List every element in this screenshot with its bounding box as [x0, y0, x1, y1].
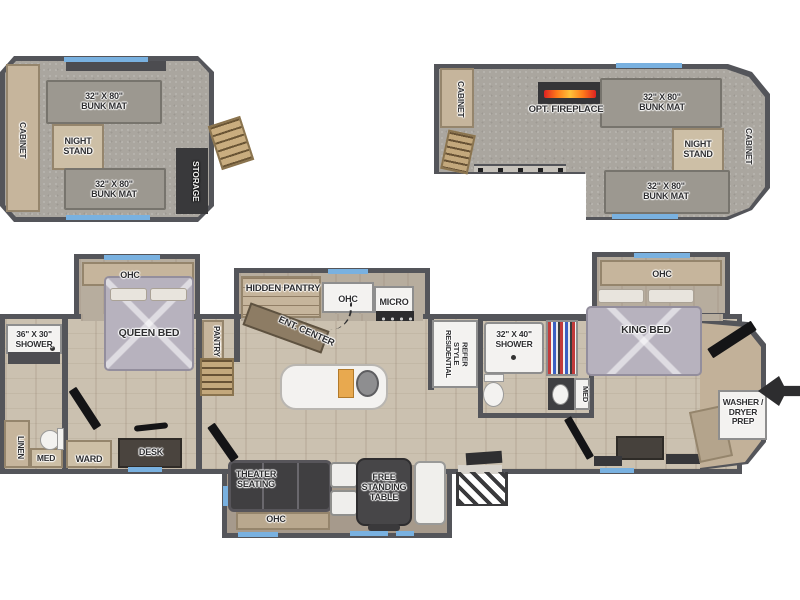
- king-bench: [616, 436, 664, 460]
- theater-ohc: [236, 512, 330, 530]
- king-bottom-window: [600, 468, 634, 473]
- refrigerator: [432, 320, 478, 388]
- king-slide-window: [634, 253, 690, 258]
- washer-dryer-prep: [718, 390, 767, 440]
- mid-toilet-tank: [484, 374, 504, 382]
- theater-window-3: [396, 531, 414, 536]
- island-cutting-board: [338, 369, 354, 398]
- rear-loft-window-top: [64, 57, 148, 62]
- front-loft-cabinet-left: [440, 68, 474, 128]
- rear-loft-cabinet: [6, 64, 40, 212]
- dinette-chair-bottom: [330, 490, 358, 516]
- queen-pillow-right: [150, 288, 187, 301]
- mid-toilet-icon: [483, 382, 504, 407]
- front-loft-night-stand: [672, 128, 724, 172]
- mid-bath-sink-icon: [552, 384, 569, 405]
- dinette-bench: [414, 461, 446, 525]
- hall-stairs-icon: [200, 358, 234, 396]
- theater-window-1: [238, 532, 278, 537]
- fireplace-icon: [538, 82, 602, 104]
- theater-window-2: [350, 531, 388, 536]
- king-bed: [586, 306, 702, 376]
- entry-steps-icon: [456, 472, 508, 506]
- kitchen-slide-window: [328, 269, 368, 274]
- rear-loft-night-stand: [52, 124, 104, 170]
- desk: [118, 438, 182, 468]
- rear-loft-top-bunk: [46, 80, 162, 124]
- microwave: [374, 286, 414, 313]
- entry-door-mat: [466, 451, 503, 465]
- theater-sofa: [228, 460, 332, 512]
- king-pillow-right: [648, 289, 694, 303]
- mid-bath-wardrobe: [546, 320, 578, 376]
- mid-shower-drain: [511, 355, 516, 360]
- king-ohc: [600, 260, 722, 286]
- ward-cabinet: [66, 440, 112, 468]
- front-loft-bottom-bunk: [604, 170, 730, 214]
- mid-shower: [484, 322, 544, 374]
- free-standing-table: [356, 458, 412, 526]
- front-loft-window-top: [616, 63, 682, 68]
- rear-med-cabinet: [30, 448, 63, 468]
- linen-cabinet: [4, 420, 30, 468]
- king-floor-mat-left: [594, 456, 622, 466]
- king-pillow-left: [598, 289, 644, 303]
- rear-vanity: [8, 352, 60, 364]
- dinette-chair-top: [330, 462, 358, 488]
- range-icon: [376, 311, 414, 321]
- front-loft-top-bunk: [600, 78, 722, 128]
- rear-loft-bottom-bunk: [64, 168, 166, 210]
- floorplan-canvas: CABINET 32" X 80"BUNK MAT NIGHTSTAND 32"…: [0, 0, 800, 600]
- rear-toilet-tank: [57, 428, 64, 450]
- theater-window-side: [223, 486, 228, 506]
- rear-loft-ladder-icon: [208, 116, 255, 170]
- pantry-cabinet: [202, 320, 224, 360]
- rear-loft-lintel: [66, 61, 166, 71]
- rear-shower-drain: [50, 346, 55, 351]
- mid-med-cabinet: [574, 378, 590, 410]
- wall-hall-living: [234, 316, 240, 362]
- queen-slide-window: [104, 255, 160, 260]
- table-foot: [368, 524, 400, 531]
- king-floor-mat-right: [666, 454, 700, 464]
- island-sink-icon: [356, 370, 379, 397]
- bedroom-bottom-window: [128, 467, 162, 472]
- front-loft-railing-ticks: [478, 168, 564, 172]
- rear-loft-storage: [176, 148, 208, 214]
- front-loft-window-bottom: [612, 214, 678, 219]
- rear-loft-window-bottom: [66, 215, 150, 220]
- queen-pillow-left: [110, 288, 147, 301]
